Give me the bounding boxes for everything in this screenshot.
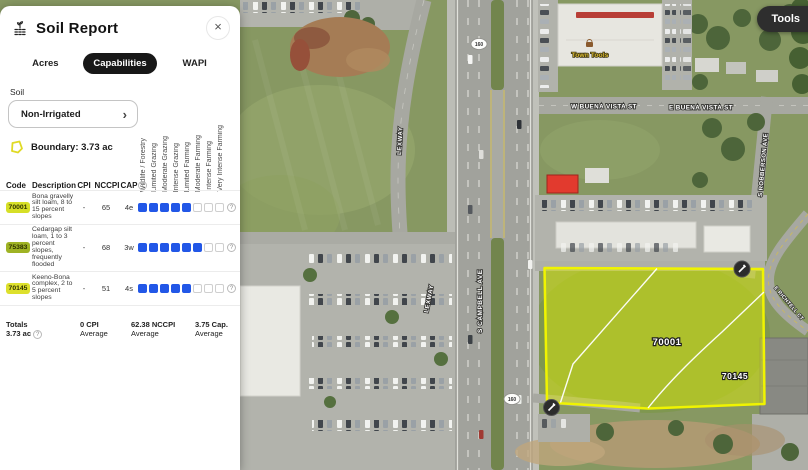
boundary-polygon-icon — [10, 140, 24, 154]
nccpi-value: 51 — [92, 284, 120, 293]
soil-table-body: 70001 Bona gravelly silt loam, 8 to 15 p… — [0, 190, 240, 306]
soil-description: Keeno-Bona complex, 2 to 5 percent slope… — [32, 275, 76, 303]
tab-acres[interactable]: Acres — [8, 53, 83, 74]
parcel-polygon[interactable]: 70001 70145 — [544, 261, 765, 416]
big-parking-lot — [240, 232, 455, 470]
header-cap: CAP — [120, 181, 138, 190]
soil-code-badge: 70145 — [6, 283, 30, 294]
nccpi-value: 65 — [92, 203, 120, 212]
soil-code-badge: 70001 — [6, 202, 30, 213]
tools-button[interactable]: Tools — [757, 6, 808, 32]
tab-wapi[interactable]: WAPI — [157, 53, 232, 74]
soil-report-icon — [12, 20, 28, 36]
nccpi-value: 68 — [92, 243, 120, 252]
route-shield: 160 — [471, 39, 487, 50]
totals-cpi-sub: Average — [80, 329, 108, 338]
parcel-soil-label-70145: 70145 — [722, 371, 748, 381]
soil-report-panel: Soil Report × Acres Capabilities WAPI So… — [0, 6, 240, 470]
totals-cap-sub: Average — [195, 329, 223, 338]
header-description: Description — [32, 181, 76, 190]
totals-label: Totals — [6, 320, 28, 329]
soil-description: Cedargap silt loam, 1 to 3 percent slope… — [32, 227, 76, 268]
close-icon[interactable]: × — [206, 16, 230, 40]
header-nccpi: NCCPI — [93, 181, 121, 190]
table-row: 70001 Bona gravelly silt loam, 8 to 15 p… — [0, 191, 240, 225]
table-header: Code Description CPI NCCPI CAP ? — [0, 176, 240, 190]
soil-section-label: Soil — [10, 87, 240, 97]
svg-text:160: 160 — [508, 397, 517, 403]
totals-cpi-value: 0 CPI — [80, 320, 99, 329]
svg-text:Town Tools: Town Tools — [572, 52, 609, 59]
capability-rating — [138, 203, 224, 212]
totals-row: Totals 3.73 ac ? 0 CPI Average 62.38 NCC… — [0, 320, 240, 350]
help-icon[interactable]: ? — [138, 181, 147, 190]
totals-nccpi: 62.38 NCCPI Average — [131, 320, 175, 338]
help-icon[interactable]: ? — [227, 243, 236, 252]
red-roof-building — [547, 175, 578, 193]
capability-rating — [138, 243, 224, 252]
svg-text:160: 160 — [475, 42, 484, 48]
header-code: Code — [6, 181, 26, 190]
soil-code-badge: 75383 — [6, 242, 30, 253]
totals-area: Totals 3.73 ac ? — [6, 320, 42, 339]
totals-area-value: 3.73 ac — [6, 329, 31, 338]
boundary-row: Boundary: 3.73 ac — [10, 140, 240, 154]
highway — [447, 0, 539, 470]
dirt-patch — [290, 17, 390, 77]
boundary-label: Boundary: 3.73 ac — [31, 142, 113, 153]
table-row: 75383 Cedargap silt loam, 1 to 3 percent… — [0, 225, 240, 272]
parcel-soil-label-70001: 70001 — [653, 337, 682, 348]
panel-title: Soil Report — [36, 20, 118, 37]
soil-select-value: Non-Irrigated — [21, 109, 81, 120]
street-label-campbell: S CAMPBELL AVE — [477, 269, 484, 333]
cpi-value: - — [76, 243, 92, 252]
cpi-value: - — [76, 203, 92, 212]
totals-cap: 3.75 Cap. Average — [195, 320, 228, 338]
help-icon[interactable]: ? — [227, 284, 236, 293]
parcel-vertex-marker[interactable] — [734, 261, 750, 277]
header-cpi: CPI — [75, 181, 93, 190]
cpi-value: - — [76, 284, 92, 293]
totals-cpi: 0 CPI Average — [80, 320, 108, 338]
help-icon[interactable]: ? — [33, 330, 42, 339]
tab-capabilities[interactable]: Capabilities — [83, 53, 158, 74]
soil-type-select[interactable]: Non-Irrigated › — [8, 100, 138, 128]
table-row: 70145 Keeno-Bona complex, 2 to 5 percent… — [0, 272, 240, 306]
report-tabs: Acres Capabilities WAPI — [8, 53, 232, 74]
help-icon[interactable]: ? — [227, 203, 236, 212]
capability-rating — [138, 284, 224, 293]
app-window: 70001 70145 160 160 LEXWAY LEXWAY S CAMP… — [0, 0, 808, 470]
route-shield: 160 — [504, 394, 520, 405]
totals-nccpi-sub: Average — [131, 329, 159, 338]
cap-value: 3w — [120, 243, 138, 252]
cap-value: 4e — [120, 203, 138, 212]
street-label-buena-vista-w: W BUENA VISTA ST — [571, 104, 637, 111]
panel-header: Soil Report × — [0, 6, 240, 40]
soil-description: Bona gravelly silt loam, 8 to 15 percent… — [32, 194, 76, 222]
street-label-buena-vista-e: E BUENA VISTA ST — [669, 105, 733, 112]
chevron-right-icon: › — [123, 108, 127, 121]
cap-value: 4s — [120, 284, 138, 293]
parcel-vertex-marker[interactable] — [544, 400, 560, 416]
totals-nccpi-value: 62.38 NCCPI — [131, 320, 175, 329]
totals-cap-value: 3.75 Cap. — [195, 320, 228, 329]
